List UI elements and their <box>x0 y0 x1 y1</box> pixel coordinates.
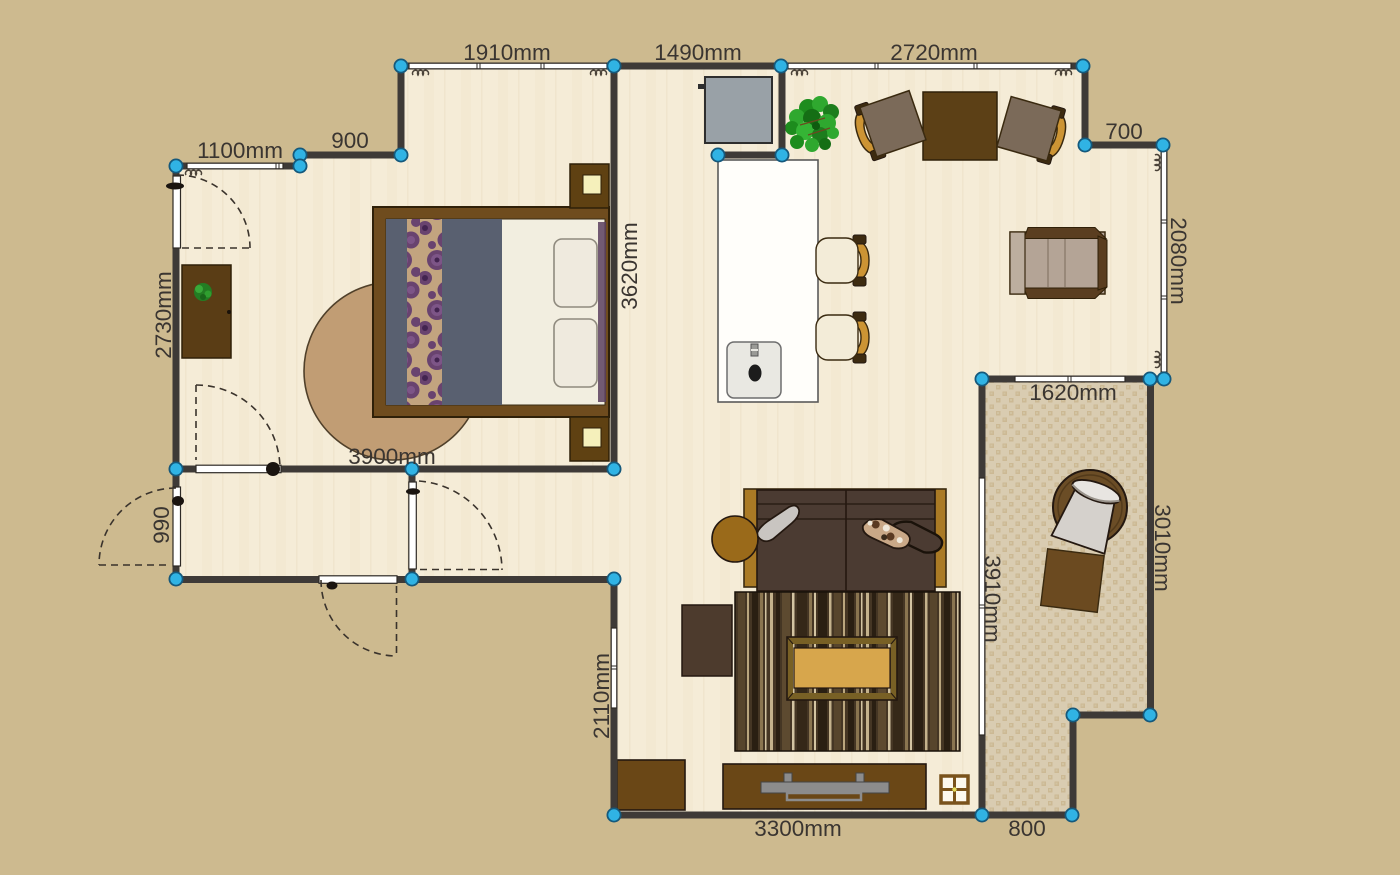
svg-text:990: 990 <box>149 506 174 544</box>
svg-text:3300mm: 3300mm <box>754 816 842 841</box>
svg-text:3910mm: 3910mm <box>980 555 1005 643</box>
svg-text:1620mm: 1620mm <box>1029 380 1117 405</box>
svg-text:900: 900 <box>331 128 369 153</box>
svg-text:2110mm: 2110mm <box>589 653 614 739</box>
svg-text:3620mm: 3620mm <box>617 222 642 310</box>
svg-text:800: 800 <box>1008 816 1046 841</box>
svg-text:2720mm: 2720mm <box>890 40 978 65</box>
svg-text:1100mm: 1100mm <box>197 138 283 163</box>
svg-text:1490mm: 1490mm <box>654 40 742 65</box>
svg-text:2080mm: 2080mm <box>1166 217 1191 305</box>
svg-text:2730mm: 2730mm <box>151 271 176 359</box>
svg-text:700: 700 <box>1105 119 1143 144</box>
svg-text:1910mm: 1910mm <box>463 40 551 65</box>
svg-text:3900mm: 3900mm <box>348 444 436 469</box>
svg-text:3010mm: 3010mm <box>1150 504 1175 592</box>
